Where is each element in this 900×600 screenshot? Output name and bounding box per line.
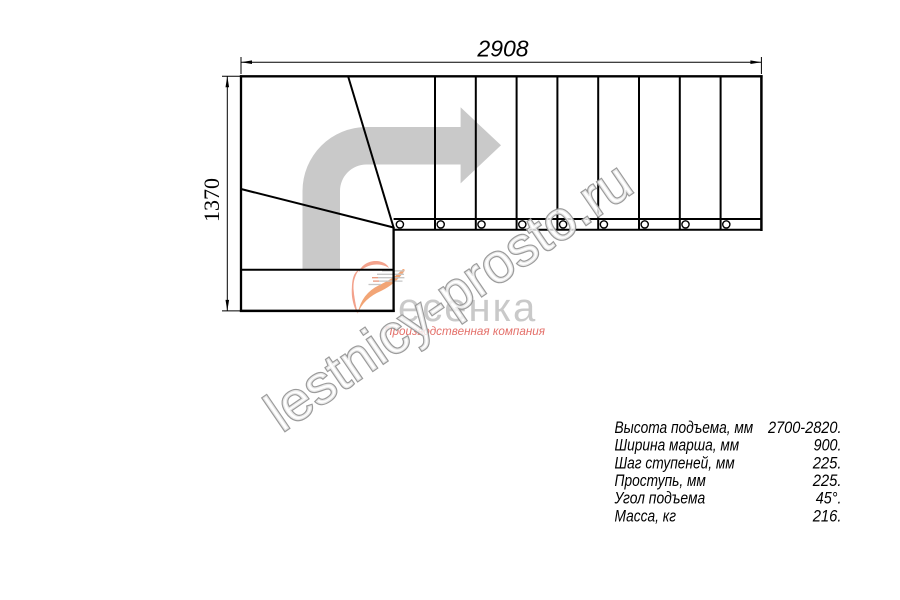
svg-text:Шаг ступеней, мм: Шаг ступеней, мм — [615, 454, 735, 472]
svg-text:2700-2820.: 2700-2820. — [767, 419, 841, 437]
svg-text:225.: 225. — [812, 454, 842, 472]
svg-text:1370: 1370 — [199, 178, 224, 222]
svg-text:216.: 216. — [812, 507, 842, 525]
svg-text:Масса, кг: Масса, кг — [615, 507, 677, 525]
svg-text:Высота подъема, мм: Высота подъема, мм — [615, 419, 754, 437]
svg-text:45°.: 45°. — [816, 490, 842, 508]
svg-text:225.: 225. — [812, 472, 842, 490]
svg-text:2908: 2908 — [476, 36, 528, 62]
svg-text:Угол подъема: Угол подъема — [614, 490, 706, 508]
svg-text:Проступь, мм: Проступь, мм — [615, 472, 706, 490]
svg-text:Ширина марша, мм: Ширина марша, мм — [615, 437, 740, 455]
svg-text:900.: 900. — [814, 437, 842, 455]
